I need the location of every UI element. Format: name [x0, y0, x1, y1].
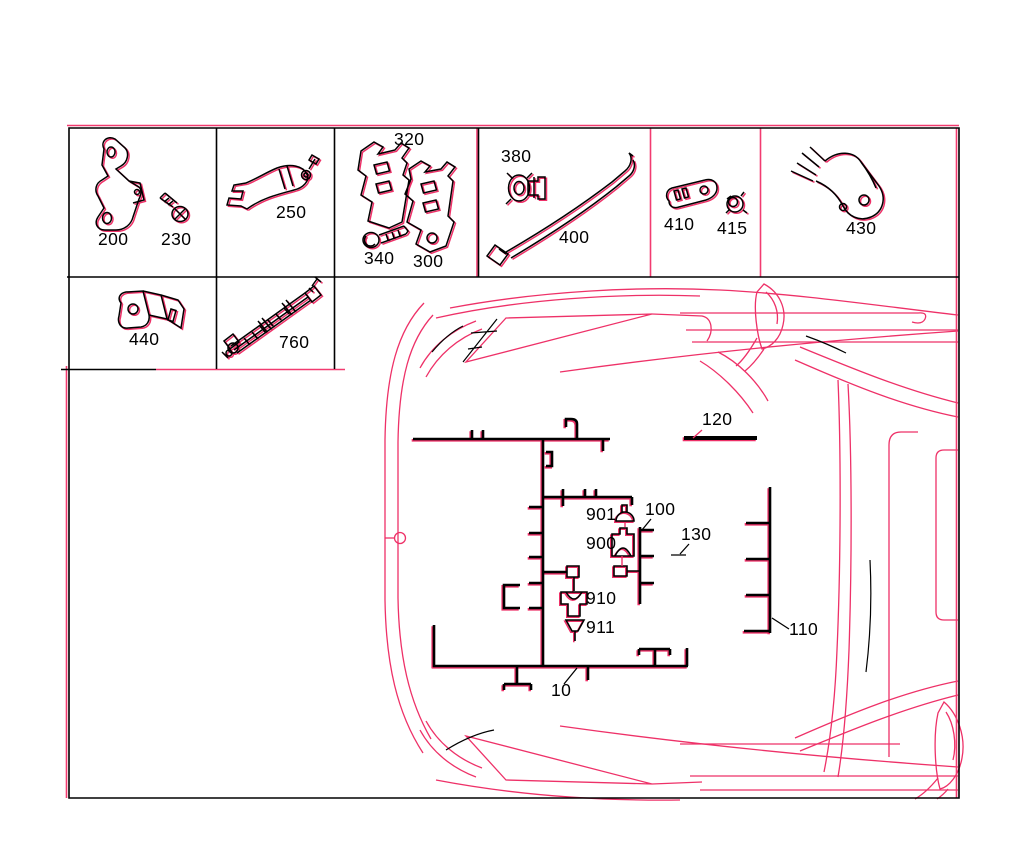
part-label-230[interactable]: 230	[161, 231, 191, 249]
callout-911[interactable]: 911	[586, 619, 615, 637]
callout-120[interactable]: 120	[702, 411, 732, 429]
grid-highlight-lines	[67, 126, 960, 799]
wiring-harness	[413, 419, 770, 690]
part-label-760[interactable]: 760	[279, 334, 309, 352]
car-outline	[385, 284, 963, 800]
parts-catalog-figure: 200 230 250 320 340 300 380 400 410 415 …	[0, 0, 1024, 849]
part-label-430[interactable]: 430	[846, 220, 876, 238]
part-label-415[interactable]: 415	[717, 220, 747, 238]
car-outline-accents	[432, 319, 871, 750]
callout-910[interactable]: 910	[586, 590, 616, 608]
callout-110[interactable]: 110	[789, 621, 818, 639]
part-drawings	[96, 138, 883, 358]
parts-grid-lines	[61, 128, 959, 798]
part-label-440[interactable]: 440	[129, 331, 159, 349]
callout-10[interactable]: 10	[551, 682, 571, 700]
callout-901[interactable]: 901	[586, 506, 616, 524]
part-label-410[interactable]: 410	[664, 216, 694, 234]
part-label-340[interactable]: 340	[364, 250, 394, 268]
part-label-380[interactable]: 380	[501, 148, 531, 166]
callout-900[interactable]: 900	[586, 535, 616, 553]
diagram-canvas	[0, 0, 1024, 849]
wiring-harness-shadow	[412, 420, 769, 691]
part-label-250[interactable]: 250	[276, 204, 306, 222]
callout-leaders	[564, 430, 789, 684]
part-label-400[interactable]: 400	[559, 229, 589, 247]
callout-130[interactable]: 130	[681, 526, 711, 544]
part-label-300[interactable]: 300	[413, 253, 443, 271]
callout-100[interactable]: 100	[645, 501, 675, 519]
part-label-200[interactable]: 200	[98, 231, 128, 249]
part-label-320[interactable]: 320	[394, 131, 424, 149]
